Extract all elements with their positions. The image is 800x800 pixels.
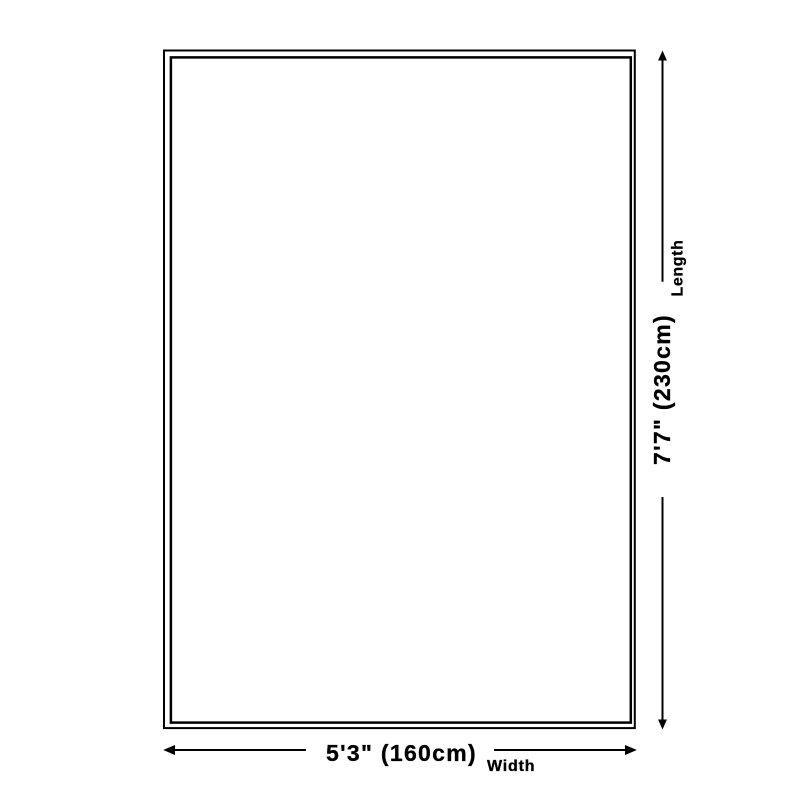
svg-text:5'3" (160cm): 5'3" (160cm) (326, 740, 477, 766)
svg-text:Width: Width (487, 758, 535, 775)
svg-text:Length: Length (670, 240, 687, 297)
svg-text:7'7" (230cm): 7'7" (230cm) (649, 314, 675, 465)
